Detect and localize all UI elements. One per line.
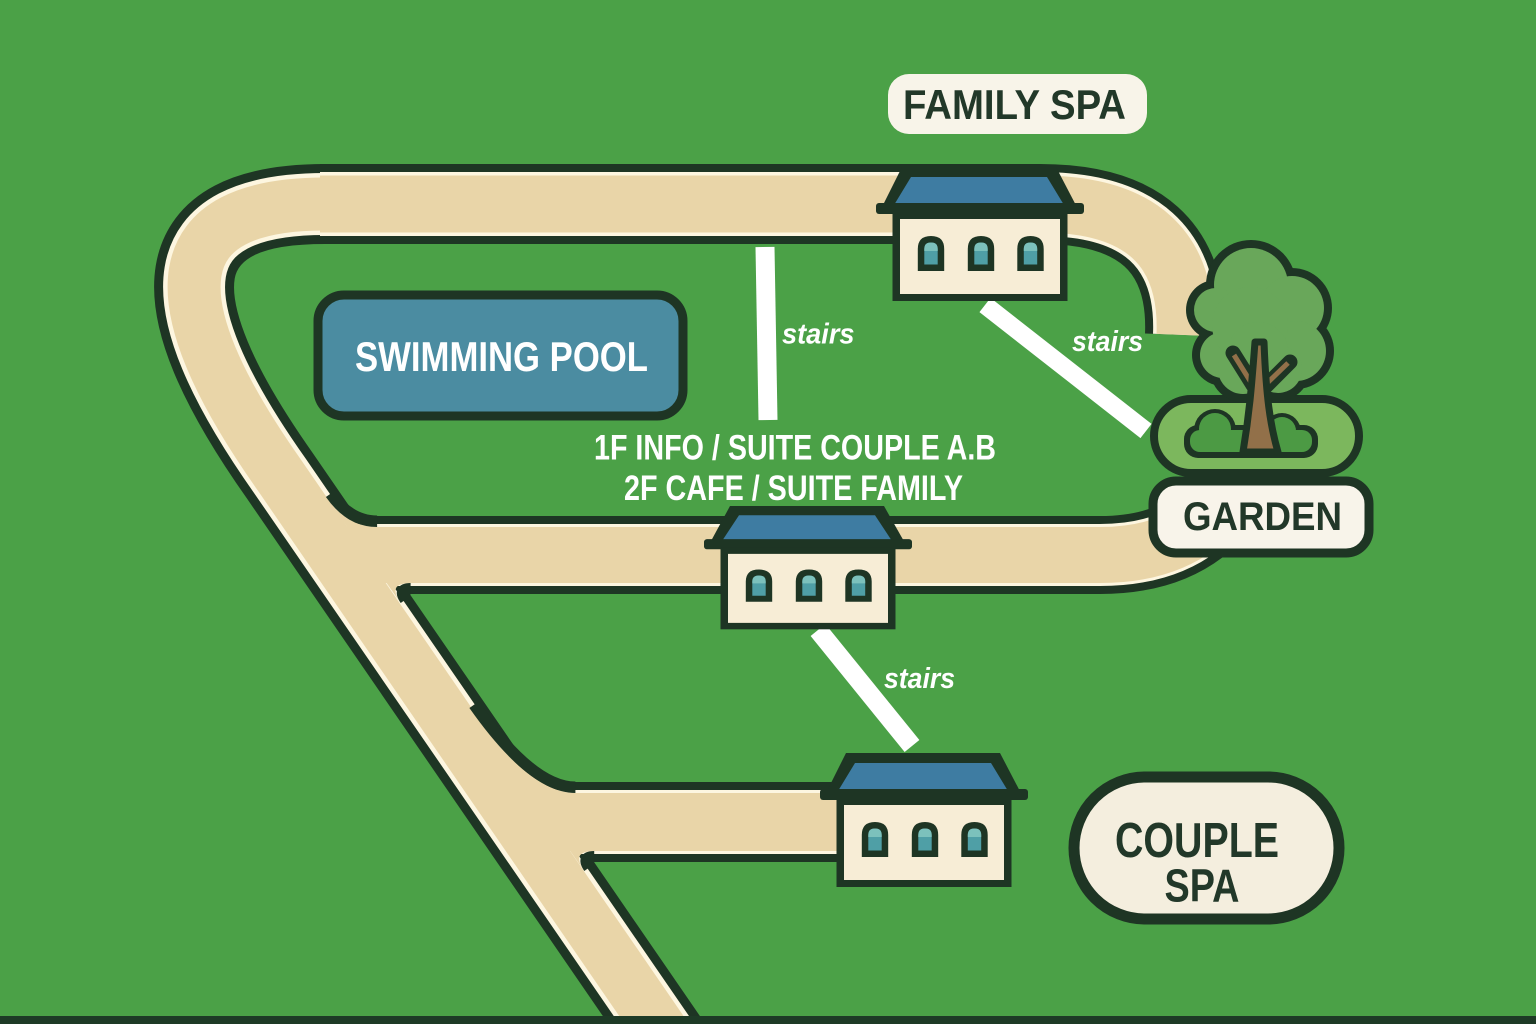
svg-text:stairs: stairs <box>1072 326 1143 358</box>
svg-text:GARDEN: GARDEN <box>1183 495 1342 539</box>
svg-text:2F CAFE / SUITE FAMILY: 2F CAFE / SUITE FAMILY <box>624 469 963 508</box>
svg-text:1F INFO / SUITE COUPLE A.B: 1F INFO / SUITE COUPLE A.B <box>594 429 996 468</box>
svg-text:stairs: stairs <box>884 663 955 695</box>
svg-text:SWIMMING POOL: SWIMMING POOL <box>355 333 648 380</box>
svg-text:SPA: SPA <box>1165 860 1240 912</box>
svg-text:stairs: stairs <box>782 319 855 351</box>
svg-text:FAMILY SPA: FAMILY SPA <box>903 81 1126 128</box>
